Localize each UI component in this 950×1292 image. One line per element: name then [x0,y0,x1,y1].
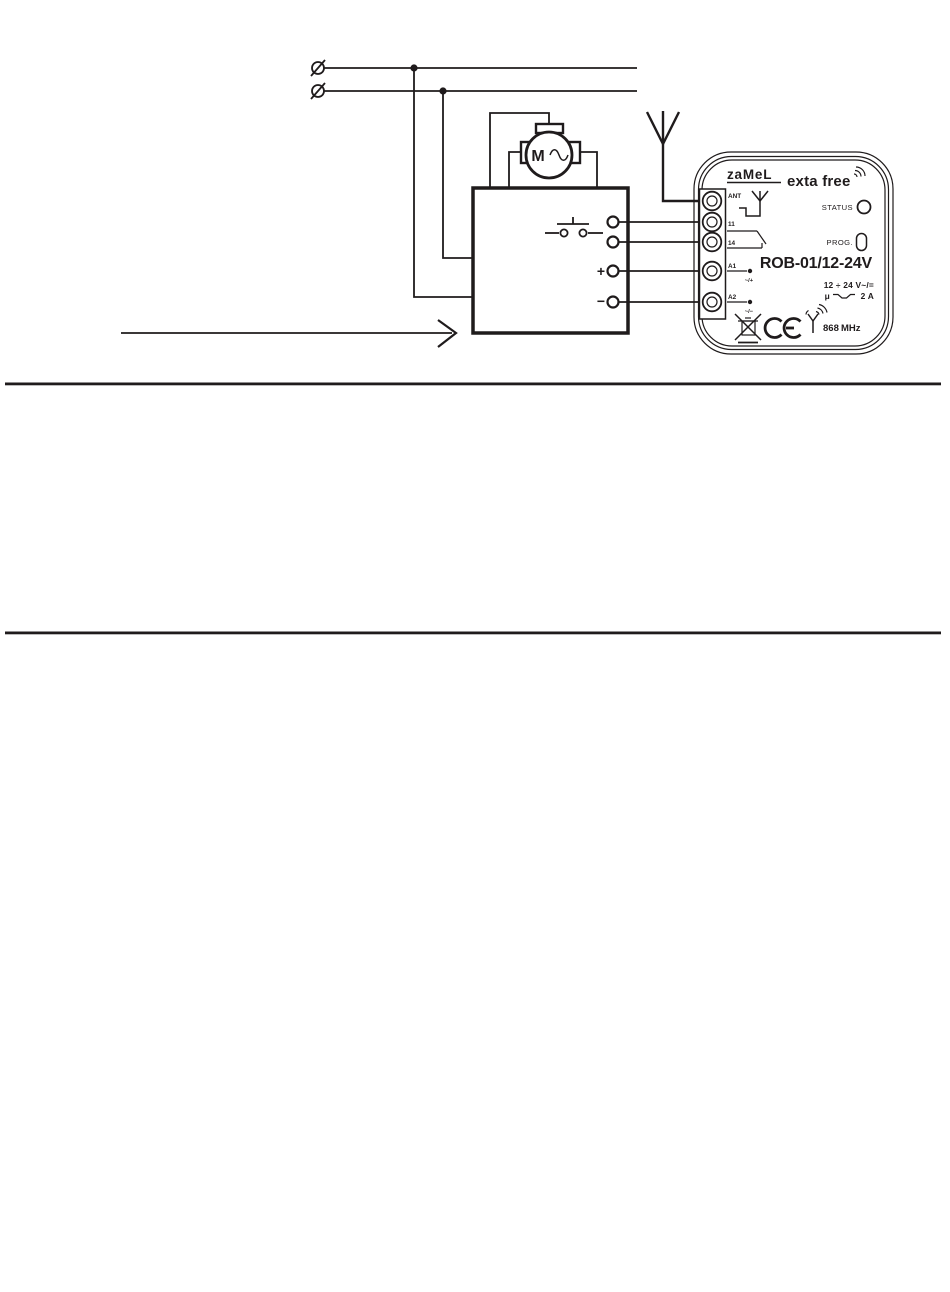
a2-polarity-label: ~/− [745,309,754,315]
terminal-label-a2: A2 [728,294,737,301]
terminal-label-ant: ANT [728,193,741,200]
controller-box [473,188,628,333]
power-terminal-icon [311,83,325,99]
manual-page: M + − [0,0,950,1292]
motor-icon: M [490,113,597,188]
weee-bin-icon [735,314,761,343]
status-led [858,201,871,214]
feed-wire-2 [443,91,473,258]
motor-wire-right [579,152,597,188]
terminal-label-11: 11 [728,221,735,228]
model-label: ROB-01/12-24V [760,255,873,272]
power-terminal-icon [311,60,325,76]
frequency-unit: MHz [841,323,861,334]
signal-waves-icon [854,167,865,177]
push-button-icon [545,217,603,237]
divider-line-2 [5,632,941,635]
a1-polarity-label: ~/+ [745,278,754,284]
brand-logo: zaMeL [727,167,772,182]
voltage-rating: 12 ÷ 24 V~/= [824,280,874,290]
micro-symbol: μ [825,291,830,301]
output-wires [619,222,703,302]
pointer-arrow [121,320,456,347]
prog-button [857,234,867,251]
status-label: STATUS [822,203,853,212]
micro-gap-icon [833,295,855,299]
prog-label: PROG. [827,238,853,247]
plus-label: + [597,263,605,279]
ant-terminal-antenna-icon [739,191,768,216]
minus-label: − [597,293,605,309]
motor-label: M [531,148,544,165]
frequency-value: 868 [823,323,839,334]
box-terminal-circles [608,217,619,308]
terminal-label-a1: A1 [728,263,737,270]
wiring-diagram-figure: M + − [0,0,950,1292]
current-rating: 2 A [861,291,874,301]
terminal-label-14: 14 [728,240,736,247]
receiver-device: zaMeL exta free ANT 11 [694,152,893,354]
ce-mark-icon [765,318,800,337]
divider-line-1 [5,383,941,386]
family-label: exta free [787,173,851,190]
